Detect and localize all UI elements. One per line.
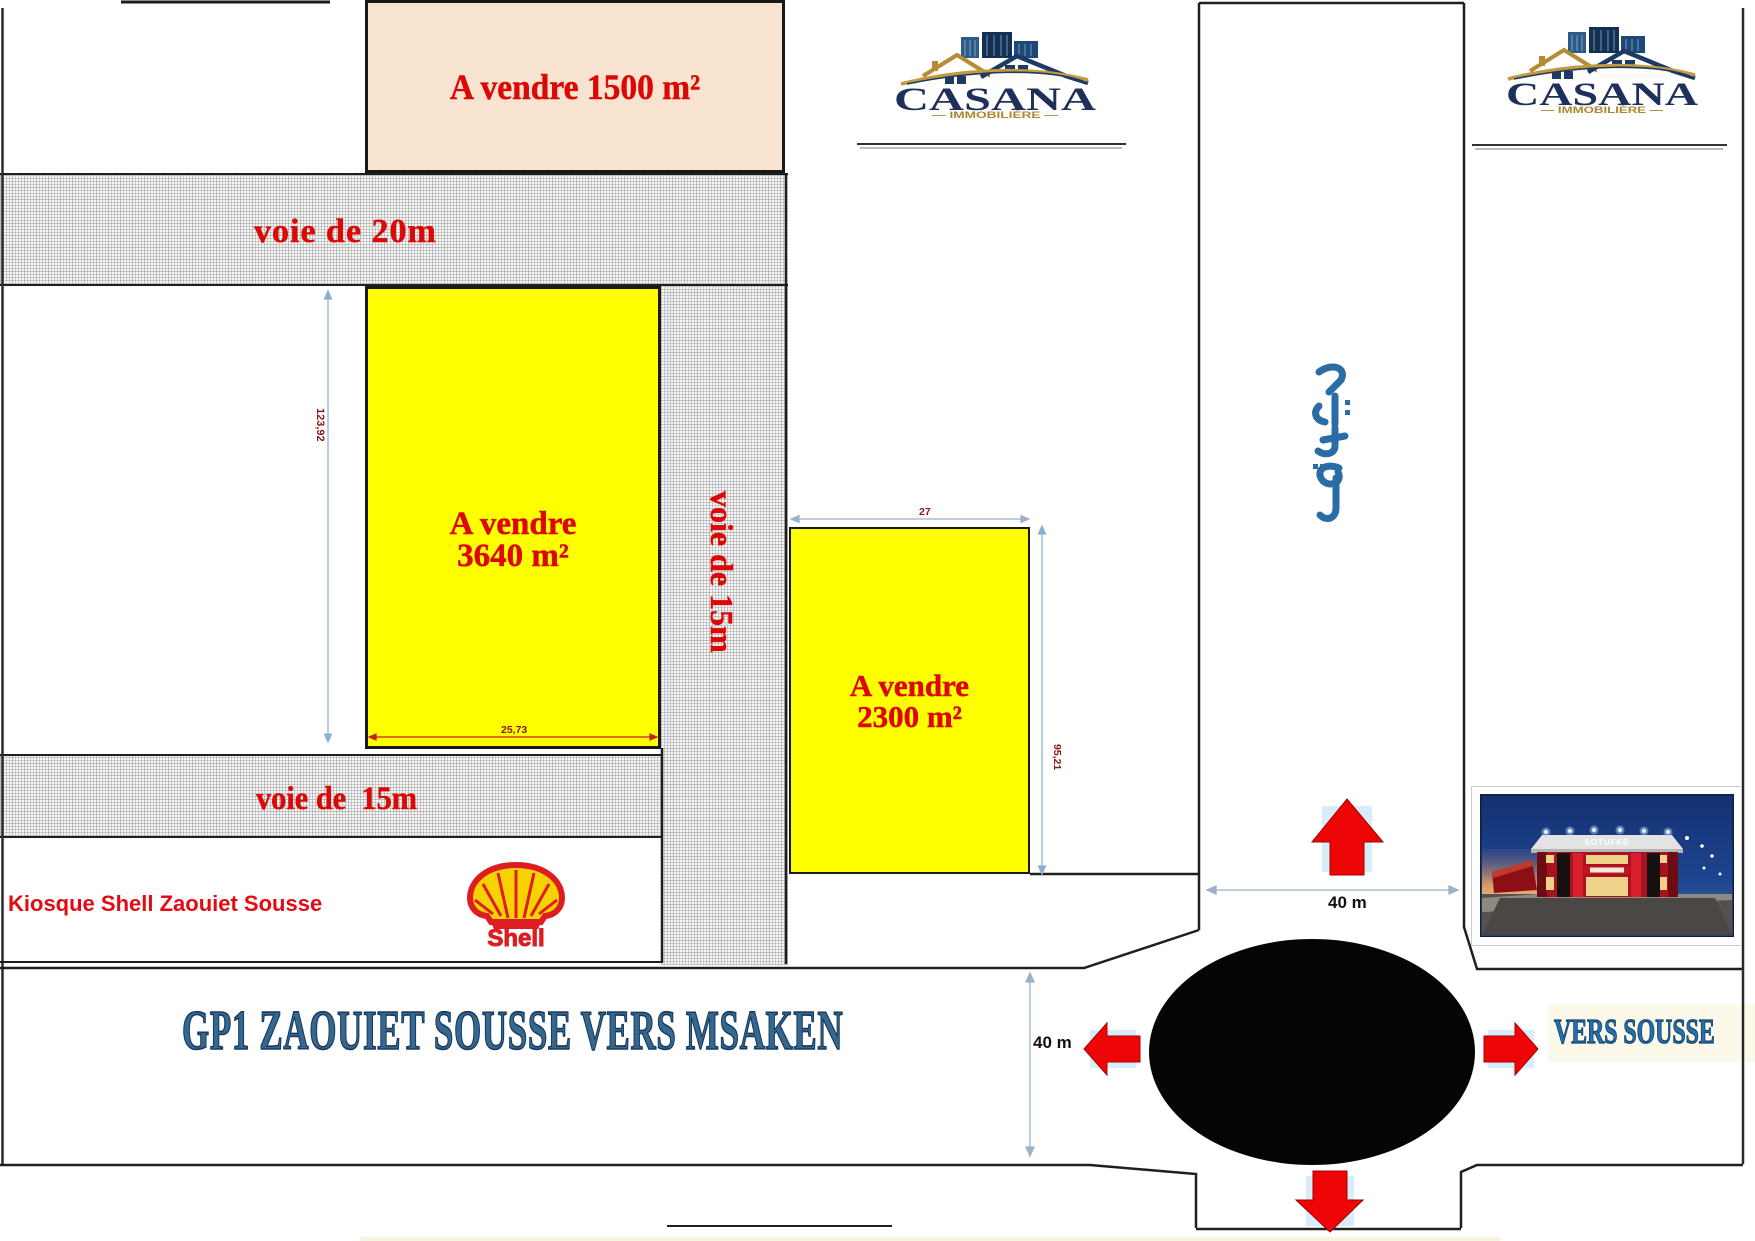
svg-text:SOTUFAB: SOTUFAB (1584, 838, 1629, 847)
svg-text:— IMMOBILIÈRE —: — IMMOBILIÈRE — (932, 110, 1058, 120)
svg-text:Shell: Shell (487, 925, 544, 950)
svg-text:— IMMOBILIÈRE —: — IMMOBILIÈRE — (1541, 105, 1663, 115)
